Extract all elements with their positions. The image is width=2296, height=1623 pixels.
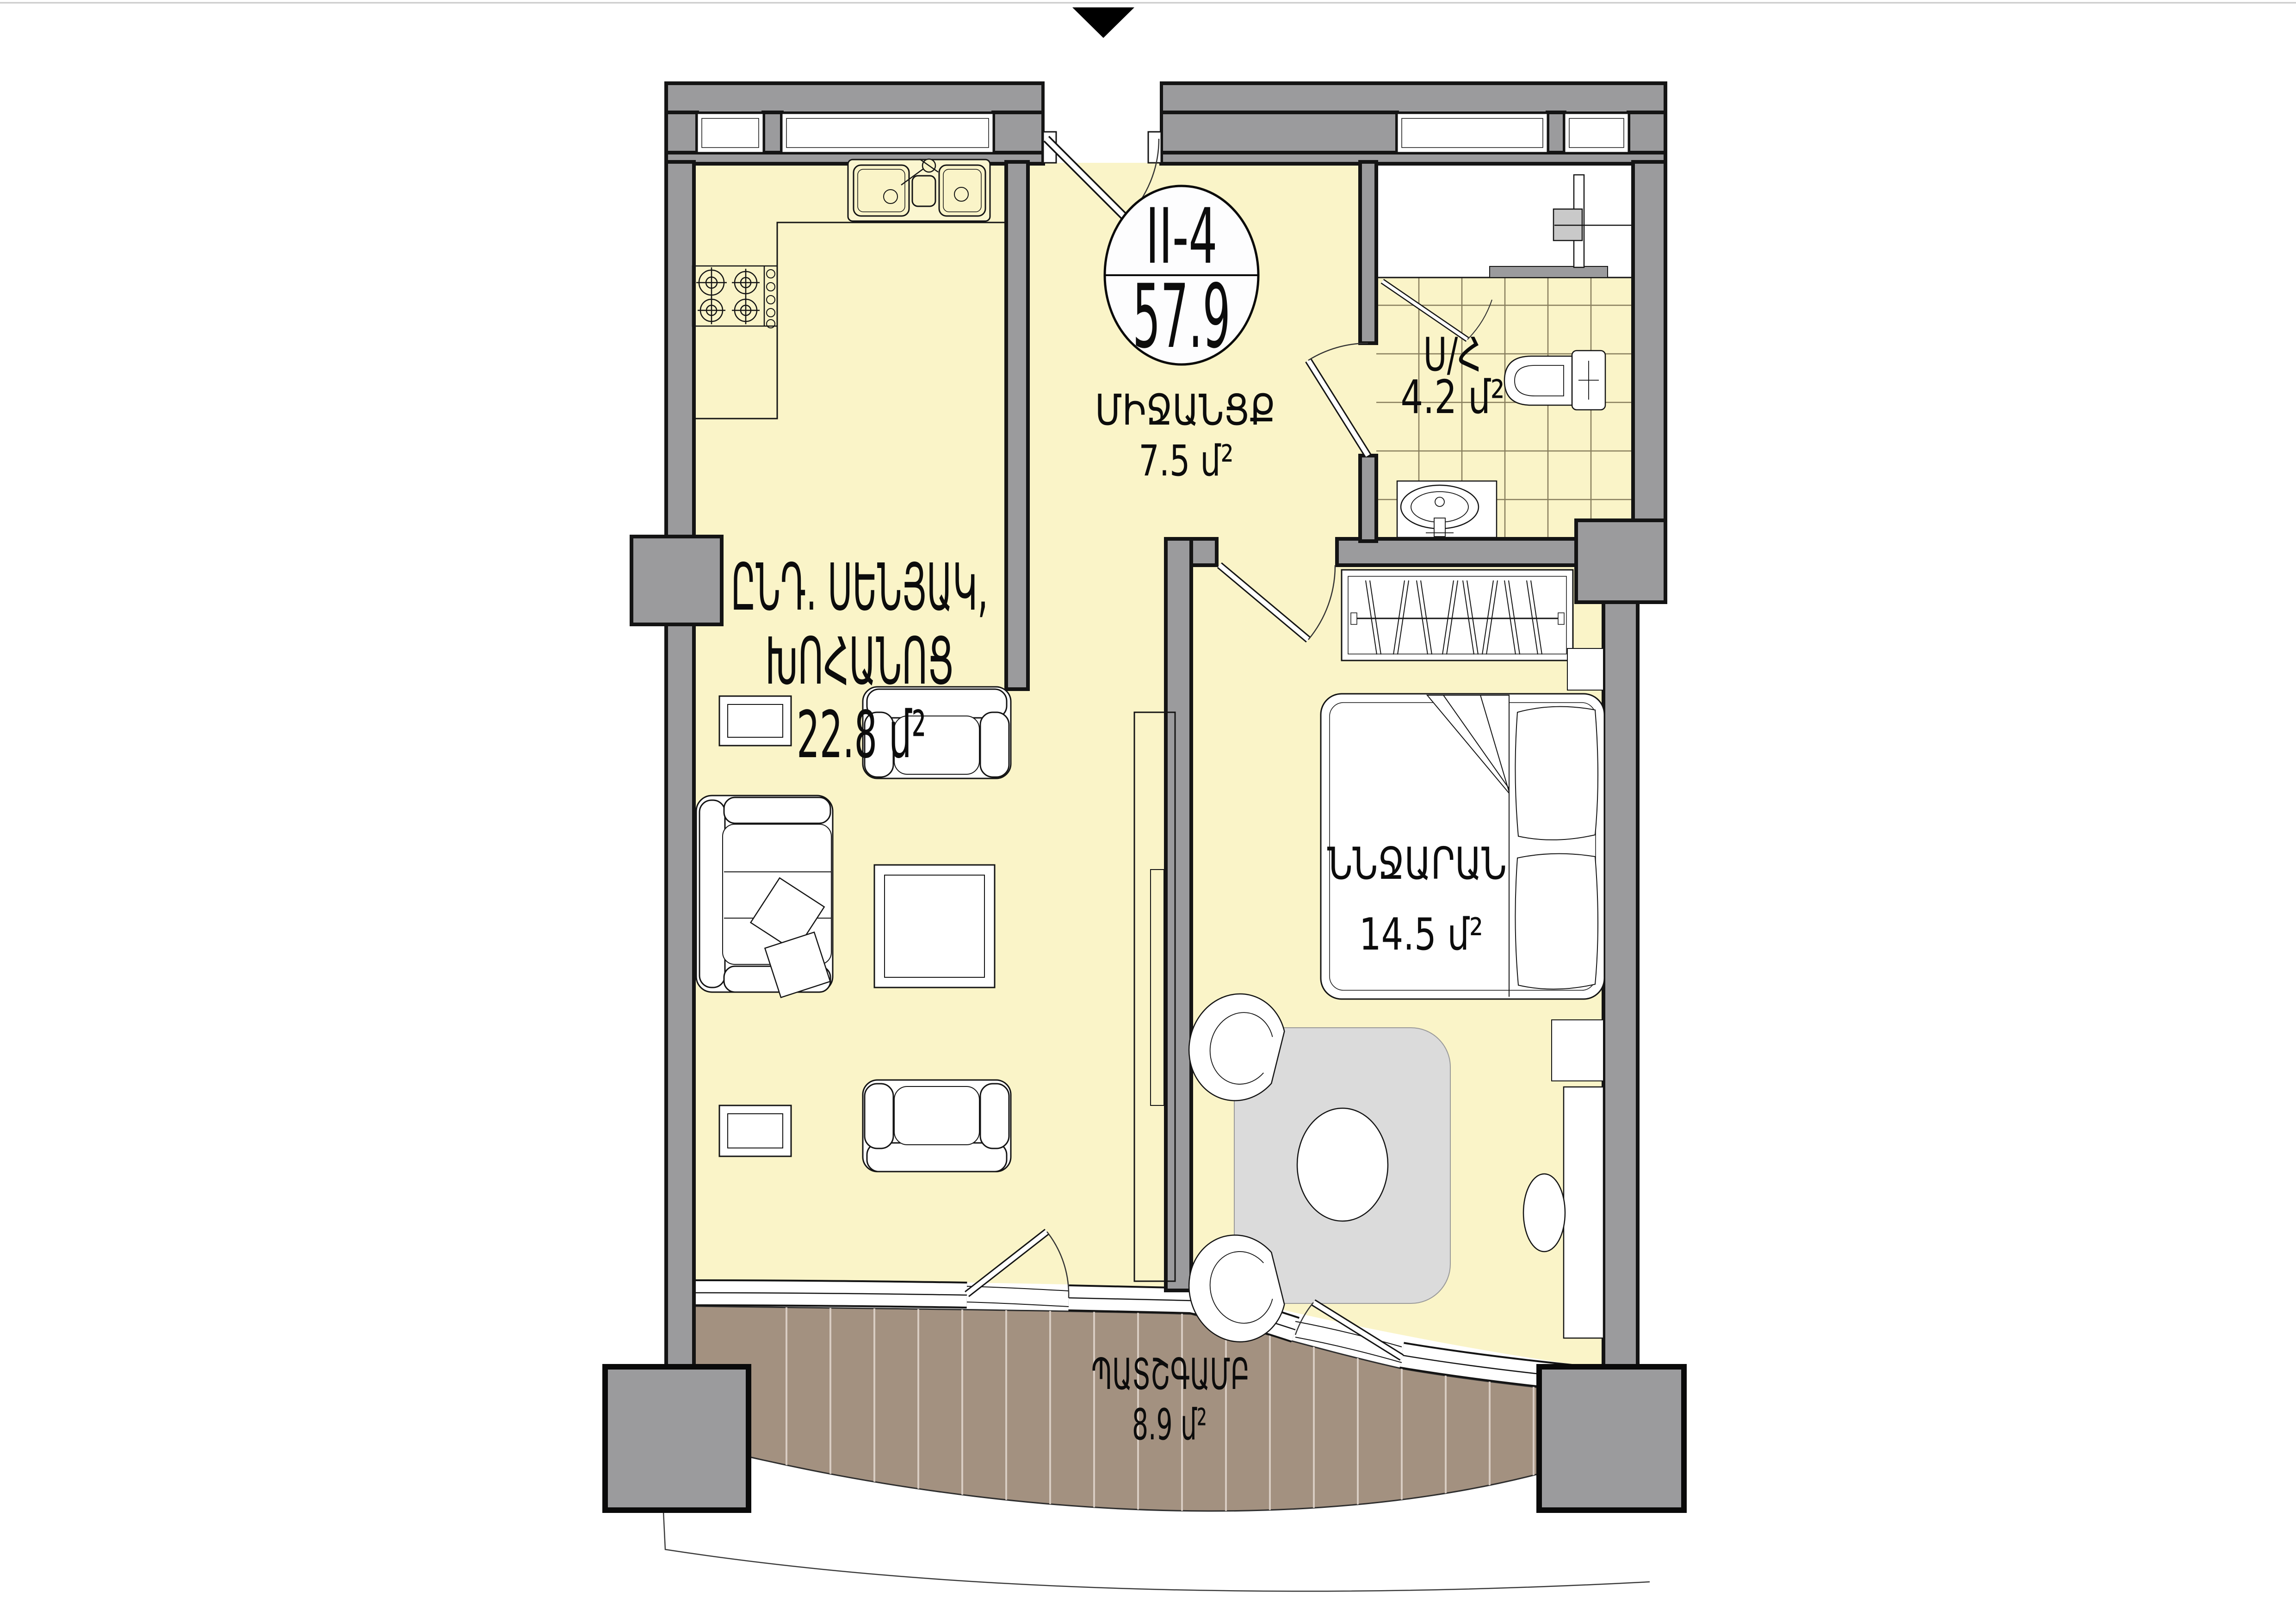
entrance-triangle-icon — [1072, 7, 1134, 38]
sofa — [696, 796, 833, 998]
wall-window-mullion-bath — [1547, 112, 1565, 154]
coffee-table — [874, 865, 995, 987]
armchair-bottom — [863, 1080, 1011, 1172]
unit-badge: II-4 57.9 — [1105, 186, 1258, 368]
nightstand-head — [1567, 648, 1603, 690]
wall-window-pier-mid — [993, 112, 1043, 154]
wall-top-right — [1161, 83, 1665, 113]
wall-right-upper — [1633, 162, 1665, 520]
label-bathroom-area: 4.2 մ² — [1401, 370, 1505, 424]
side-table-top — [719, 696, 791, 746]
wall-window-pier-right — [1628, 112, 1665, 154]
entrance-jamb-right — [1148, 132, 1161, 163]
kitchen-sink — [848, 159, 990, 221]
label-bedroom-name: ՆՆՋԱՐԱՆ — [1327, 839, 1507, 889]
balcony-slab-outline — [663, 1512, 1650, 1591]
desk — [1564, 1087, 1603, 1338]
wall-top-left — [666, 83, 1043, 113]
label-living-area: 22.8 մ² — [797, 697, 926, 773]
wall-right-lower — [1603, 602, 1638, 1370]
wall-window-mullion-kitchen — [763, 112, 782, 154]
bathroom-window — [1397, 113, 1628, 153]
wall-left — [666, 162, 694, 1367]
pilaster-left — [631, 537, 722, 624]
bathroom-sink — [1397, 481, 1497, 537]
desk-stool — [1523, 1174, 1565, 1252]
label-living-name-line2: ԽՈՀԱՆՈՑ — [765, 624, 954, 699]
pilaster-right — [1576, 520, 1665, 602]
label-bedroom-area: 14.5 մ² — [1359, 909, 1483, 960]
wall-sill-right — [1161, 153, 1665, 164]
label-hallway-area: 7.5 մ² — [1139, 436, 1234, 486]
label-balcony-area: 8.9 մ² — [1132, 1400, 1207, 1450]
column-bottom-right — [1539, 1367, 1684, 1510]
wall-window-pier-left — [666, 112, 697, 154]
side-table-bottom — [719, 1105, 791, 1156]
wall-pier-right-long — [1161, 112, 1397, 154]
floor-plan: II-4 57.9 ՄԻՋԱՆՑՔ 7.5 մ² Ս/Հ 4.2 մ² ԸՆԴ.… — [0, 0, 2296, 1623]
unit-area: 57.9 — [1133, 265, 1231, 368]
label-balcony-name: ՊԱՏՇԳԱՄԲ — [1091, 1349, 1250, 1399]
label-living-name-line1: ԸՆԴ. ՍԵՆՅԱԿ, — [731, 550, 988, 625]
wall-kitchen-hall-divider — [1006, 162, 1028, 689]
kitchen-window — [697, 113, 993, 153]
round-table — [1297, 1108, 1388, 1221]
column-bottom-left — [605, 1367, 749, 1510]
wall-bathroom-left-lower — [1360, 456, 1376, 541]
utility-shaft — [1376, 163, 1633, 278]
label-hallway-name: ՄԻՋԱՆՑՔ — [1095, 385, 1275, 435]
toilet — [1504, 351, 1605, 410]
wardrobe — [1342, 570, 1573, 660]
nightstand-foot — [1552, 1020, 1603, 1081]
wall-bathroom-left-upper — [1360, 162, 1376, 343]
wall-living-bedroom-divider — [1166, 539, 1191, 1290]
